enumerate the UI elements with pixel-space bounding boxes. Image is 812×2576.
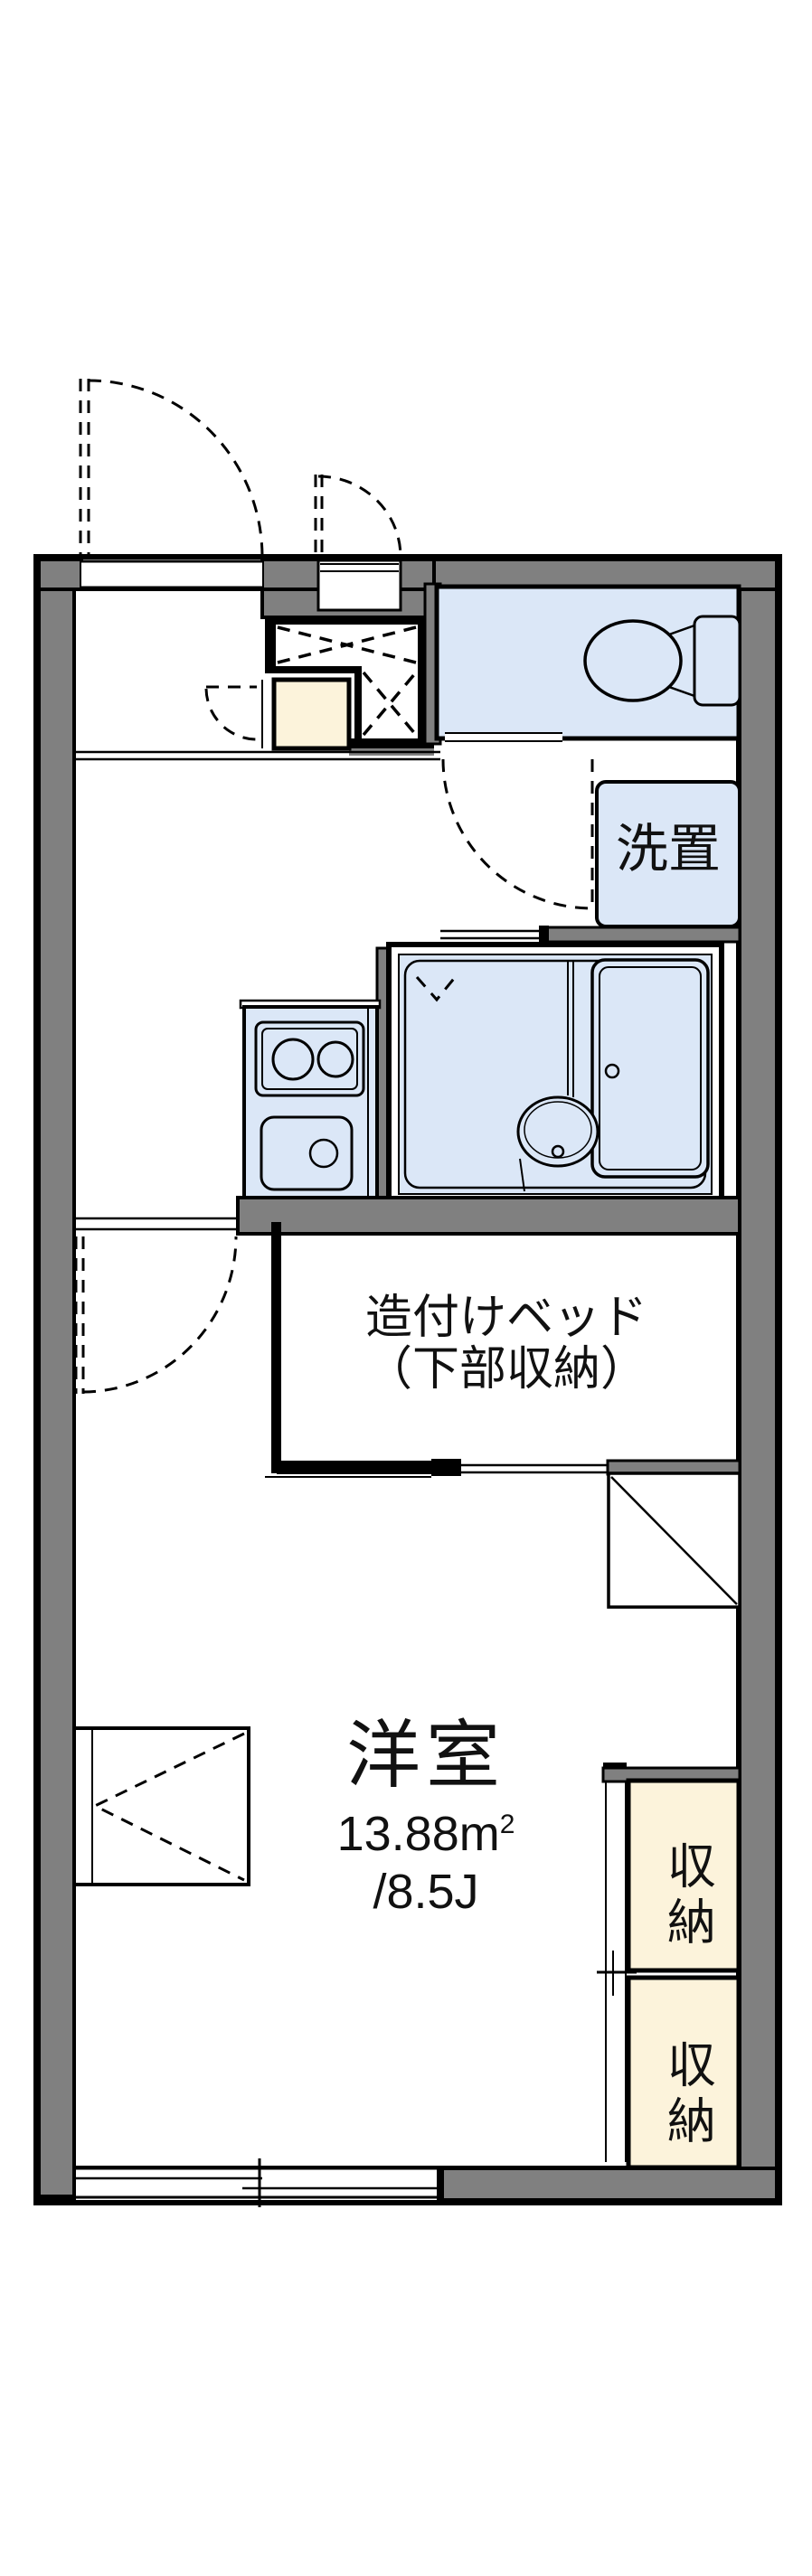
room-size-jo-label: /8.5J: [281, 1866, 571, 1919]
sink-icon: [261, 1117, 352, 1189]
entrance: [80, 379, 401, 610]
bathtub-icon: [592, 960, 708, 1177]
stove-icon: [256, 1022, 364, 1095]
room-name-label: 洋室: [281, 1716, 571, 1797]
storage-lower-label: 収納: [659, 2014, 713, 2176]
entry-door-opening: [81, 561, 262, 588]
toilet-room: [425, 584, 740, 744]
room-area-value: 13.88m: [337, 1807, 500, 1861]
washroom-wall-cap: [539, 926, 549, 944]
bathroom: [377, 945, 722, 1204]
bed-label-line2: （下部収納）: [271, 1344, 741, 1396]
washroom-wall-band: [541, 927, 740, 942]
floorplan-page: 洗置 造付けベッド （下部収納） 洋室 13.88m2 /8.5J 収納 収納: [0, 0, 812, 2576]
storage-lower-left-border: [354, 666, 362, 746]
wall-band-above-bed: [238, 1198, 740, 1234]
bed-bottom-wall: [277, 1461, 431, 1474]
wall-bottom-right-segment: [440, 2168, 777, 2200]
storage-left-border: [265, 617, 276, 673]
room-area-label: 13.88m2: [281, 1808, 571, 1861]
left-wall-bottom-cap: [39, 2195, 74, 2203]
built-in-bed-label: 造付けベッド （下部収納）: [271, 1293, 741, 1396]
wall-left: [39, 559, 74, 2200]
wall-right: [738, 559, 777, 2200]
bay-window: [74, 1728, 249, 1885]
bed-door-meeting-block: [431, 1459, 461, 1476]
niche-door-swing-icon: [316, 475, 401, 557]
entry-niche: [318, 560, 401, 610]
storage-step-border: [265, 666, 360, 673]
room-area-exponent: 2: [500, 1810, 515, 1839]
window-right-jamb: [437, 2166, 444, 2202]
bed-label-line1: 造付けベッド: [271, 1293, 741, 1344]
bay-window-box: [74, 1728, 249, 1885]
toilet-icon: [585, 616, 740, 705]
laundry-label: 洗置: [597, 821, 740, 879]
storage-top-border: [265, 617, 434, 625]
shoe-cabinet: [274, 680, 349, 748]
storage-upper-label: 収納: [659, 1815, 713, 1978]
kitchen: [241, 1001, 380, 1199]
wall-top-left-segment: [39, 559, 81, 589]
entry-door-swing-icon: [80, 379, 262, 557]
storage-bottom-border: [349, 738, 434, 748]
floorplan-drawing: [0, 0, 812, 2576]
